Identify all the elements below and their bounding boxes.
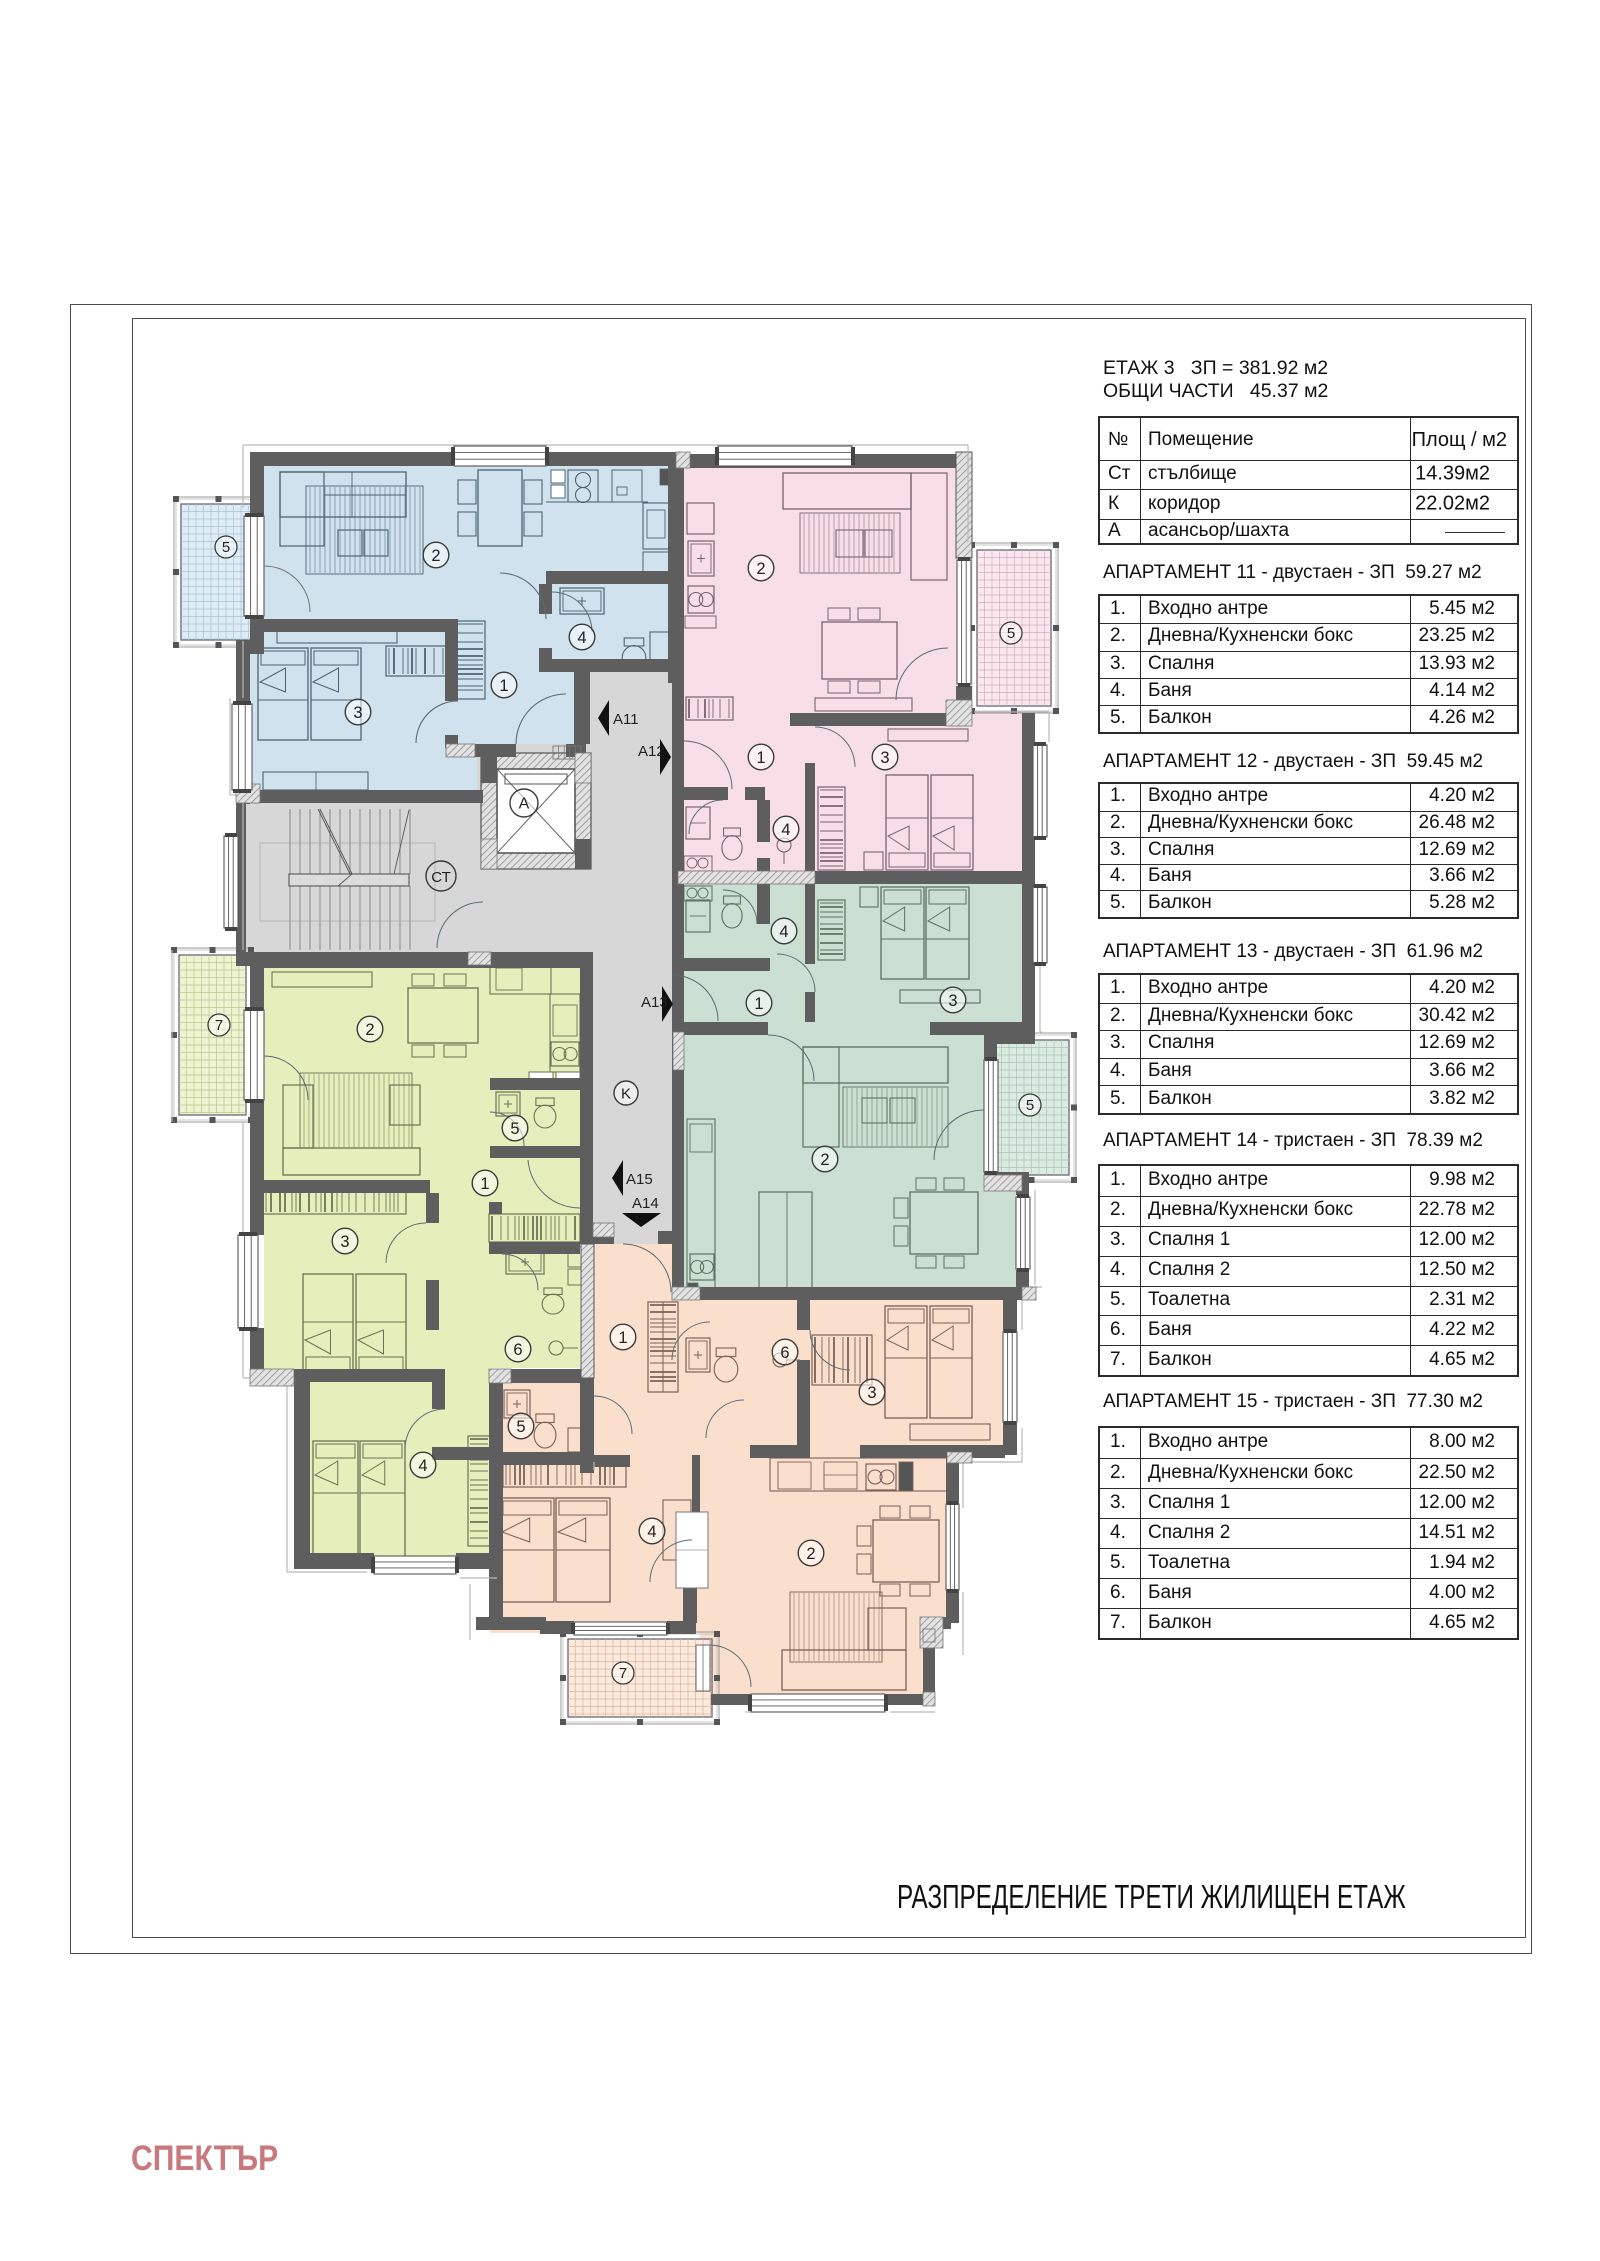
svg-text:3: 3 [880,749,889,767]
svg-text:5: 5 [222,539,230,556]
svg-text:5: 5 [1026,1097,1034,1114]
svg-text:A14: A14 [632,1195,659,1212]
svg-text:K: K [621,1085,631,1102]
svg-text:3: 3 [948,992,957,1010]
svg-text:1: 1 [754,995,763,1013]
svg-text:A12: A12 [638,743,665,760]
svg-text:5: 5 [1007,625,1015,642]
svg-text:4: 4 [647,1523,656,1541]
svg-text:4: 4 [779,923,788,941]
svg-text:1: 1 [618,1329,627,1347]
svg-text:1: 1 [499,677,508,695]
svg-text:A11: A11 [613,711,639,728]
svg-text:A15: A15 [626,1171,653,1188]
svg-text:СТ: СТ [431,869,451,886]
svg-text:2: 2 [431,547,440,565]
svg-text:4: 4 [781,821,790,839]
svg-text:5: 5 [510,1120,519,1138]
svg-text:6: 6 [513,1341,522,1359]
svg-text:2: 2 [756,560,765,578]
svg-text:5: 5 [516,1418,525,1436]
svg-text:3: 3 [867,1384,876,1402]
svg-text:3: 3 [353,704,362,722]
svg-text:7: 7 [619,1665,627,1682]
svg-text:3: 3 [340,1233,349,1251]
svg-text:4: 4 [577,629,586,647]
svg-text:1: 1 [756,749,765,767]
svg-text:1: 1 [480,1175,489,1193]
svg-text:A: A [519,796,530,813]
svg-text:7: 7 [215,1017,223,1034]
svg-text:2: 2 [806,1545,815,1563]
svg-text:2: 2 [820,1151,829,1169]
svg-text:A13: A13 [641,994,668,1011]
svg-text:2: 2 [365,1021,374,1039]
svg-text:4: 4 [418,1457,427,1475]
svg-text:6: 6 [780,1344,789,1362]
